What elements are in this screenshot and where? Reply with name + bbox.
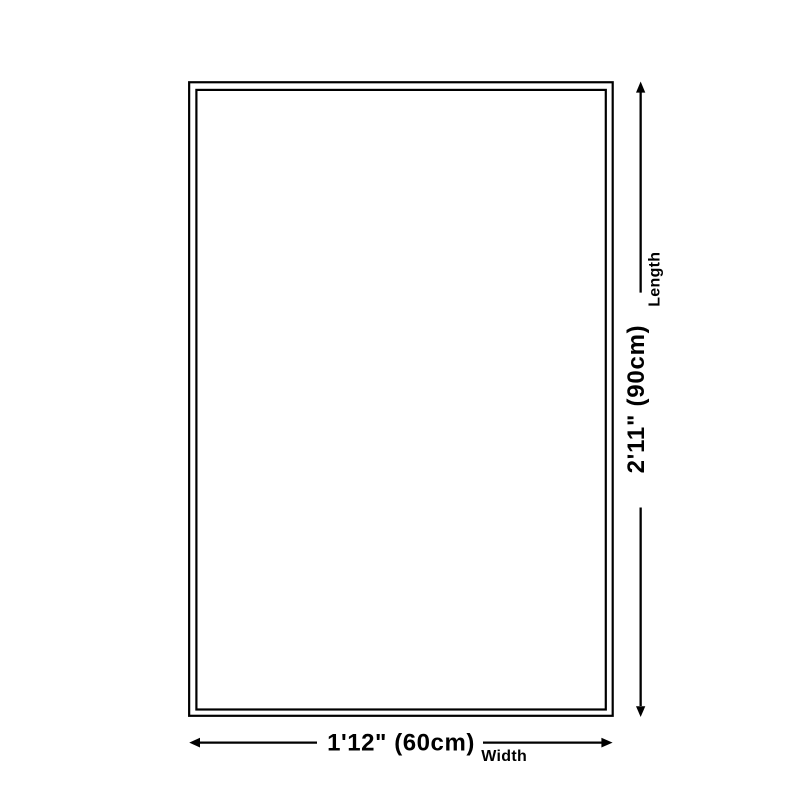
svg-text:1'12" (60cm): 1'12" (60cm) bbox=[327, 730, 475, 757]
svg-text:Length: Length bbox=[647, 252, 664, 307]
svg-text:Width: Width bbox=[481, 748, 527, 765]
svg-text:2'11" (90cm): 2'11" (90cm) bbox=[623, 325, 650, 474]
